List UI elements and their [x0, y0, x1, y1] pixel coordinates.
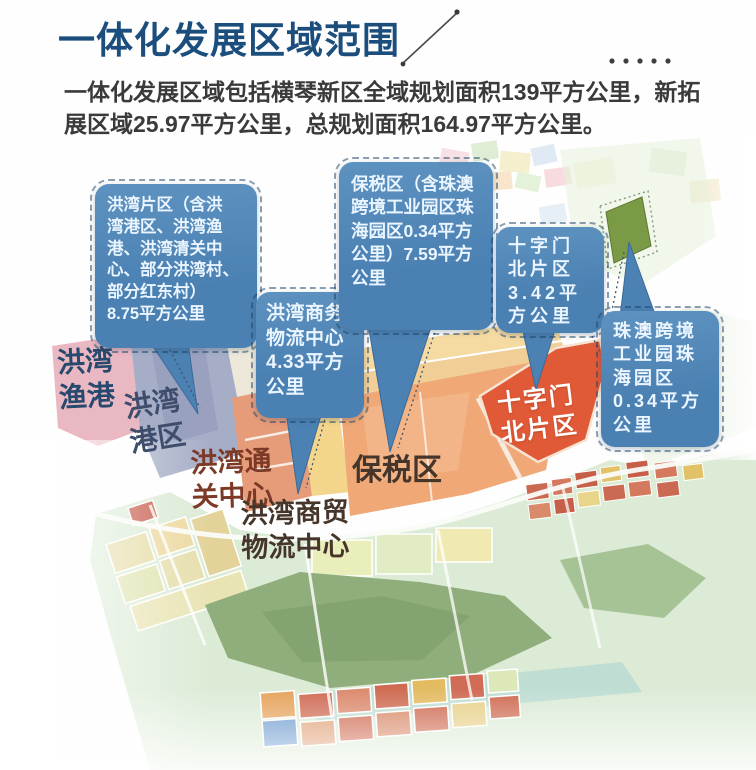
intro-text: 一体化发展区域包括横琴新区全域规划面积139平方公里，新拓 展区域25.97平方… [64, 76, 712, 140]
callout-hongwan-district: 洪湾片区（含洪 湾港区、洪湾渔 港、洪湾清关中 心、部分洪湾村、 部分红东村） … [95, 184, 257, 348]
page-title: 一体化发展区域范围 [58, 10, 400, 64]
map-label-hongwan-fishing-port: 洪湾 渔港 [56, 343, 116, 416]
map-label-hongwan-trade-logistics: 洪湾商贸 物流中心 [240, 495, 349, 565]
map-label-shizimen-north: 十字门 北片区 [496, 380, 581, 450]
callout-bonded-zone: 保税区（含珠澳 跨境工业园区珠 海园区0.34平方 公里）7.59平方 公里 [339, 162, 493, 330]
map-label-hongwan-port-area: 洪湾 港区 [122, 382, 188, 460]
infographic-root: 一体化发展区域范围 一体化发展区域包括横琴新区全域规划面积139平方公里，新拓 … [0, 0, 756, 770]
map-label-bonded-zone: 保税区 [352, 452, 442, 490]
fade-bottom [0, 688, 756, 770]
callout-cross-border-park: 珠澳跨境 工业园珠 海园区 0.34平方 公里 [601, 311, 719, 447]
callout-shizimen-north: 十字门 北片区 3.42平 方公里 [496, 227, 604, 333]
